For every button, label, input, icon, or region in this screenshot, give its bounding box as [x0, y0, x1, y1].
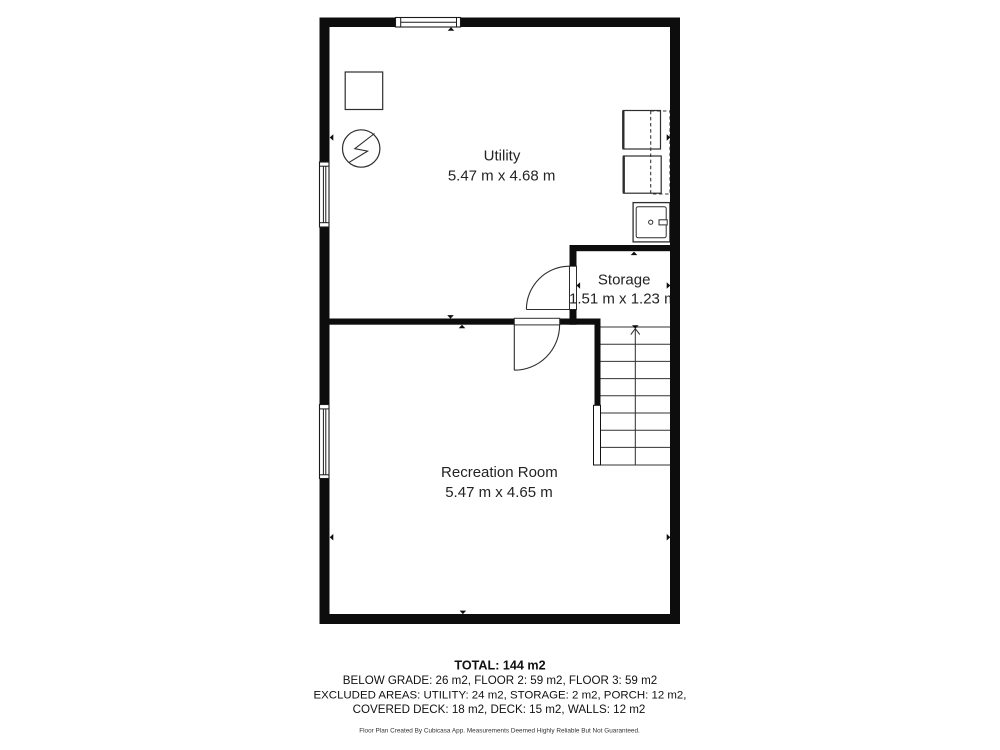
- svg-text:EXCLUDED AREAS: UTILITY: 24 m2: EXCLUDED AREAS: UTILITY: 24 m2, STORAGE:…: [314, 690, 687, 702]
- svg-text:BELOW GRADE: 26 m2, FLOOR 2: 5: BELOW GRADE: 26 m2, FLOOR 2: 59 m2, FLOO…: [343, 674, 657, 687]
- svg-text:5.47 m x 4.65 m: 5.47 m x 4.65 m: [445, 484, 553, 501]
- svg-text:Utility: Utility: [484, 147, 521, 164]
- svg-text:Storage: Storage: [598, 271, 651, 288]
- svg-text:Floor Plan Created By Cubicasa: Floor Plan Created By Cubicasa App. Meas…: [359, 728, 640, 735]
- svg-text:TOTAL: 144 m2: TOTAL: 144 m2: [454, 659, 545, 673]
- svg-text:5.47 m x 4.68 m: 5.47 m x 4.68 m: [448, 168, 556, 185]
- svg-text:Recreation Room: Recreation Room: [441, 464, 558, 481]
- svg-text:COVERED DECK: 18 m2, DECK: 15: COVERED DECK: 18 m2, DECK: 15 m2, WALLS:…: [353, 703, 646, 716]
- svg-text:1.51 m x 1.23 m: 1.51 m x 1.23 m: [569, 290, 677, 307]
